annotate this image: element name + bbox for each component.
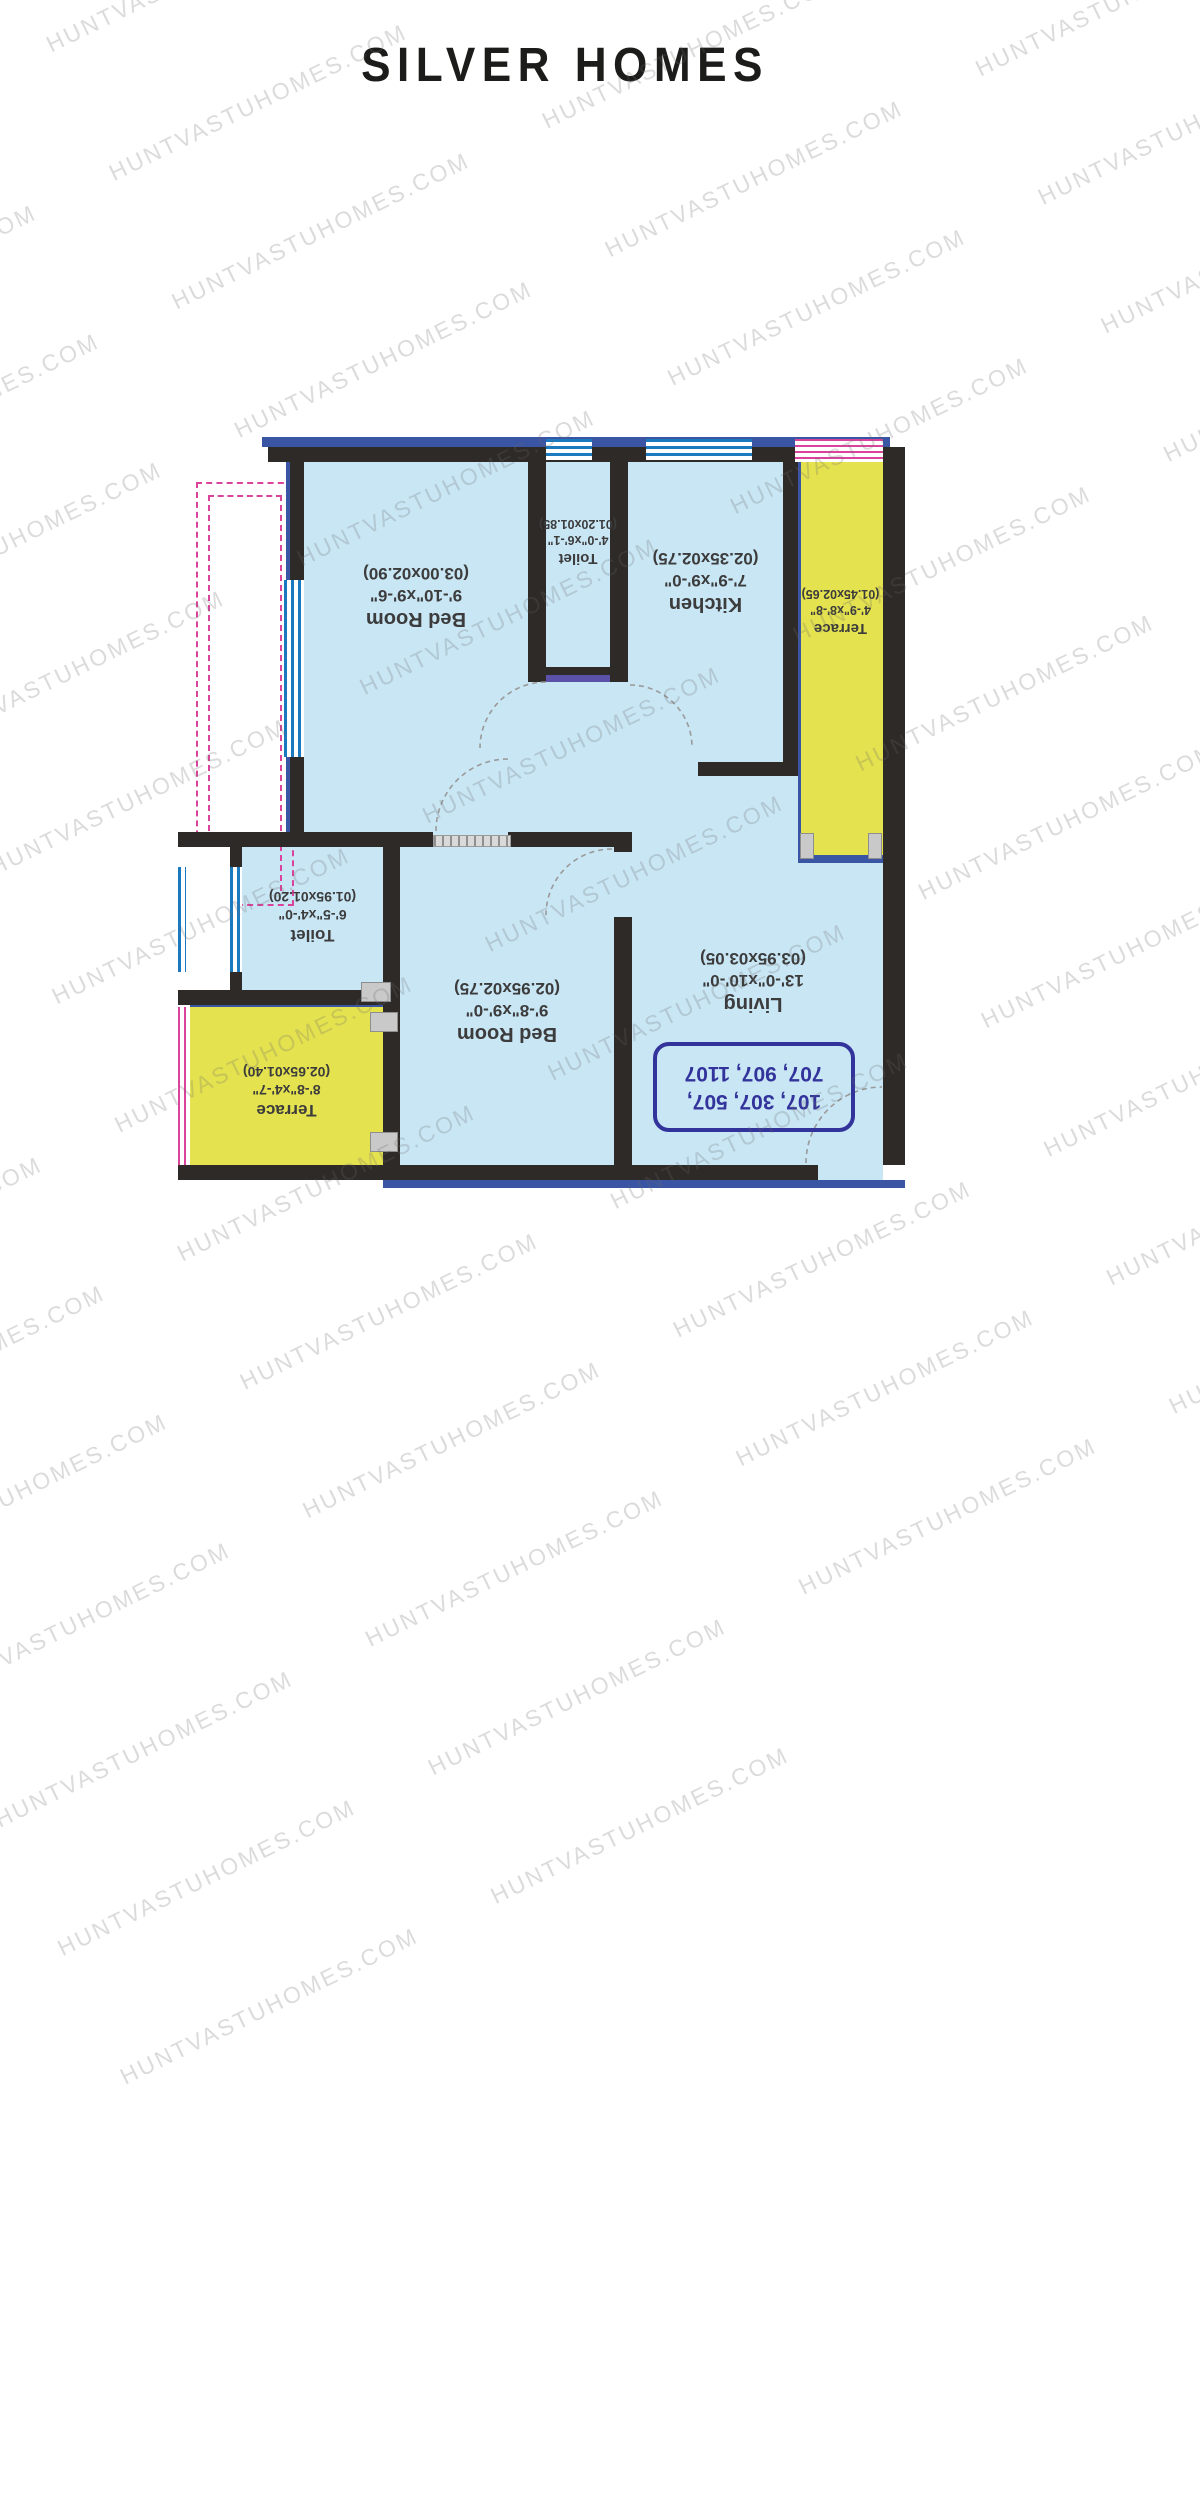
watermark-text: HUNTVASTUHOMES.COM xyxy=(669,1175,976,1343)
watermark-text: HUNTVASTUHOMES.COM xyxy=(167,147,474,315)
watermark-text: HUNTVASTUHOMES.COM xyxy=(794,1432,1101,1600)
wall-kitchen-bottom xyxy=(698,762,798,776)
watermark-text: HUNTVASTUHOMES.COM xyxy=(53,1794,360,1962)
room-size-m: (01.45x02.65) xyxy=(802,586,880,602)
watermark-text: HUNTVASTUHOMES.COM xyxy=(1102,1123,1200,1291)
toilet1-door-line xyxy=(546,675,610,682)
toilet1-door-arc xyxy=(480,682,546,748)
bedroom1-window xyxy=(284,580,304,757)
watermark-text: HUNTVASTUHOMES.COM xyxy=(0,1151,47,1319)
room-size-ft: 13'-0"x10'-0" xyxy=(702,969,804,991)
wall-right xyxy=(883,447,905,1165)
terrace-right-handle-left xyxy=(800,833,814,859)
terrace-right-handle-right xyxy=(868,833,882,859)
room-name: Bed Room xyxy=(366,606,466,632)
watermark-text: HUNTVASTUHOMES.COM xyxy=(732,1304,1039,1472)
bedroom2-wall-unit-upper xyxy=(370,1012,398,1032)
watermark-text: HUNTVASTUHOMES.COM xyxy=(298,1356,605,1524)
room-size-ft: 8'-8"x4'-7" xyxy=(252,1081,320,1099)
terrace-left-railing xyxy=(178,1007,190,1165)
watermark-text: HUNTVASTUHOMES.COM xyxy=(1097,171,1200,339)
label-living: Living 13'-0"x10'-0" (03.95x03.05) xyxy=(638,927,868,1037)
floor-plan: Bed Room 9'-10"x9'-6" (03.00x02.90) Toil… xyxy=(178,437,905,1195)
watermark-text: HUNTVASTUHOMES.COM xyxy=(0,456,166,624)
outer-bottom-line xyxy=(383,1180,905,1188)
bedroom2-door-arc xyxy=(546,849,612,915)
room-size-ft: 6'-5"x4'-0" xyxy=(278,906,346,924)
room-size-m: (03.00x02.90) xyxy=(363,562,469,584)
terrace-right-railing xyxy=(795,439,883,462)
unit-numbers-line2: 707, 907, 1107 xyxy=(685,1059,824,1087)
label-toilet2: Toilet 6'-5"x4'-0" (01.95x01.20) xyxy=(242,862,383,972)
watermark-text: HUNTVASTUHOMES.COM xyxy=(424,1613,731,1781)
room-size-ft: 9'-8"x9'-0" xyxy=(466,999,549,1021)
room-size-ft: 4'-0"x6'-1" xyxy=(548,532,609,548)
terrace-left-corner-unit xyxy=(361,982,391,1002)
room-size-m: (02.65x01.40) xyxy=(243,1063,330,1081)
watermark-text: HUNTVASTUHOMES.COM xyxy=(0,1280,109,1448)
wall-toilet1-right xyxy=(610,462,628,682)
label-toilet1: Toilet 4'-0"x6'-1" (01.20x01.85) xyxy=(546,487,610,597)
wall-bottom xyxy=(178,1165,818,1180)
bedroom1-door-arc xyxy=(436,759,508,831)
room-size-ft: 7'-9"x9'-0" xyxy=(664,569,747,591)
room-size-ft: 9'-10"x9'-6" xyxy=(370,584,462,606)
watermark-text: HUNTVASTUHOMES.COM xyxy=(0,1408,172,1576)
toilet1-window xyxy=(546,439,592,460)
wall-bedroom2-left xyxy=(383,847,400,1165)
shaft-window-left xyxy=(178,867,186,972)
passage-door-threshold xyxy=(433,835,511,847)
room-size-m: (01.20x01.85) xyxy=(539,516,617,532)
watermark-text: HUNTVASTUHOMES.COM xyxy=(486,1742,793,1910)
room-size-m: (01.95x01.20) xyxy=(269,888,356,906)
watermark-text: HUNTVASTUHOMES.COM xyxy=(475,0,782,6)
room-name: Terrace xyxy=(814,619,867,639)
wall-middle-left xyxy=(178,832,433,847)
page-title: SILVER HOMES xyxy=(45,38,1085,93)
room-size-m: (02.95x02.75) xyxy=(454,977,560,999)
unit-numbers-badge: 107, 307, 507, 707, 907, 1107 xyxy=(653,1042,855,1132)
watermark-text: HUNTVASTUHOMES.COM xyxy=(1039,995,1200,1163)
watermark-layer: HUNTVASTUHOMES.COMHUNTVASTUHOMES.COMHUNT… xyxy=(0,0,1200,2514)
room-name: Living xyxy=(724,991,783,1017)
label-terrace-right: Terrace 4'-9"x8'-8" (01.45x02.65) xyxy=(798,542,883,682)
room-name: Kitchen xyxy=(669,591,742,617)
wall-bedroom2-living-upper xyxy=(614,832,632,852)
kitchen-window xyxy=(646,439,752,460)
room-name: Toilet xyxy=(559,549,598,569)
wall-bedroom1-right xyxy=(528,462,546,682)
watermark-text: HUNTVASTUHOMES.COM xyxy=(0,328,104,496)
room-name: Toilet xyxy=(290,924,334,946)
watermark-text: HUNTVASTUHOMES.COM xyxy=(914,737,1200,905)
watermark-text: HUNTVASTUHOMES.COM xyxy=(361,1485,668,1653)
watermark-text: HUNTVASTUHOMES.COM xyxy=(1165,1252,1200,1420)
room-name: Bed Room xyxy=(457,1021,557,1047)
watermark-text: HUNTVASTUHOMES.COM xyxy=(230,276,537,444)
room-size-ft: 4'-9"x8'-8" xyxy=(810,602,871,618)
unit-numbers-line1: 107, 307, 507, xyxy=(687,1087,821,1115)
wall-bedroom2-living-lower xyxy=(614,917,632,1165)
label-bedroom2: Bed Room 9'-8"x9'-0" (02.95x02.75) xyxy=(400,947,614,1077)
label-bedroom1: Bed Room 9'-10"x9'-6" (03.00x02.90) xyxy=(304,527,528,667)
watermark-text: HUNTVASTUHOMES.COM xyxy=(0,199,41,367)
shaft-window-right xyxy=(230,867,242,972)
watermark-text: HUNTVASTUHOMES.COM xyxy=(601,95,908,263)
room-name: Terrace xyxy=(256,1099,316,1121)
watermark-text: HUNTVASTUHOMES.COM xyxy=(0,1665,297,1833)
kitchen-door-arc xyxy=(630,685,692,747)
wall-toilet2-bottom xyxy=(178,990,390,1005)
label-kitchen: Kitchen 7'-9"x9'-0" (02.35x02.75) xyxy=(628,512,783,652)
watermark-text: HUNTVASTUHOMES.COM xyxy=(236,1227,543,1395)
wall-kitchen-right xyxy=(783,462,798,762)
watermark-text: HUNTVASTUHOMES.COM xyxy=(0,1537,235,1705)
label-terrace-left: Terrace 8'-8"x4'-7" (02.65x01.40) xyxy=(190,1037,383,1147)
watermark-text: HUNTVASTUHOMES.COM xyxy=(1159,300,1200,468)
watermark-text: HUNTVASTUHOMES.COM xyxy=(116,1922,423,2090)
room-size-m: (03.95x03.05) xyxy=(700,947,806,969)
watermark-text: HUNTVASTUHOMES.COM xyxy=(663,223,970,391)
room-size-m: (02.35x02.75) xyxy=(653,547,759,569)
watermark-text: HUNTVASTUHOMES.COM xyxy=(977,866,1200,1034)
